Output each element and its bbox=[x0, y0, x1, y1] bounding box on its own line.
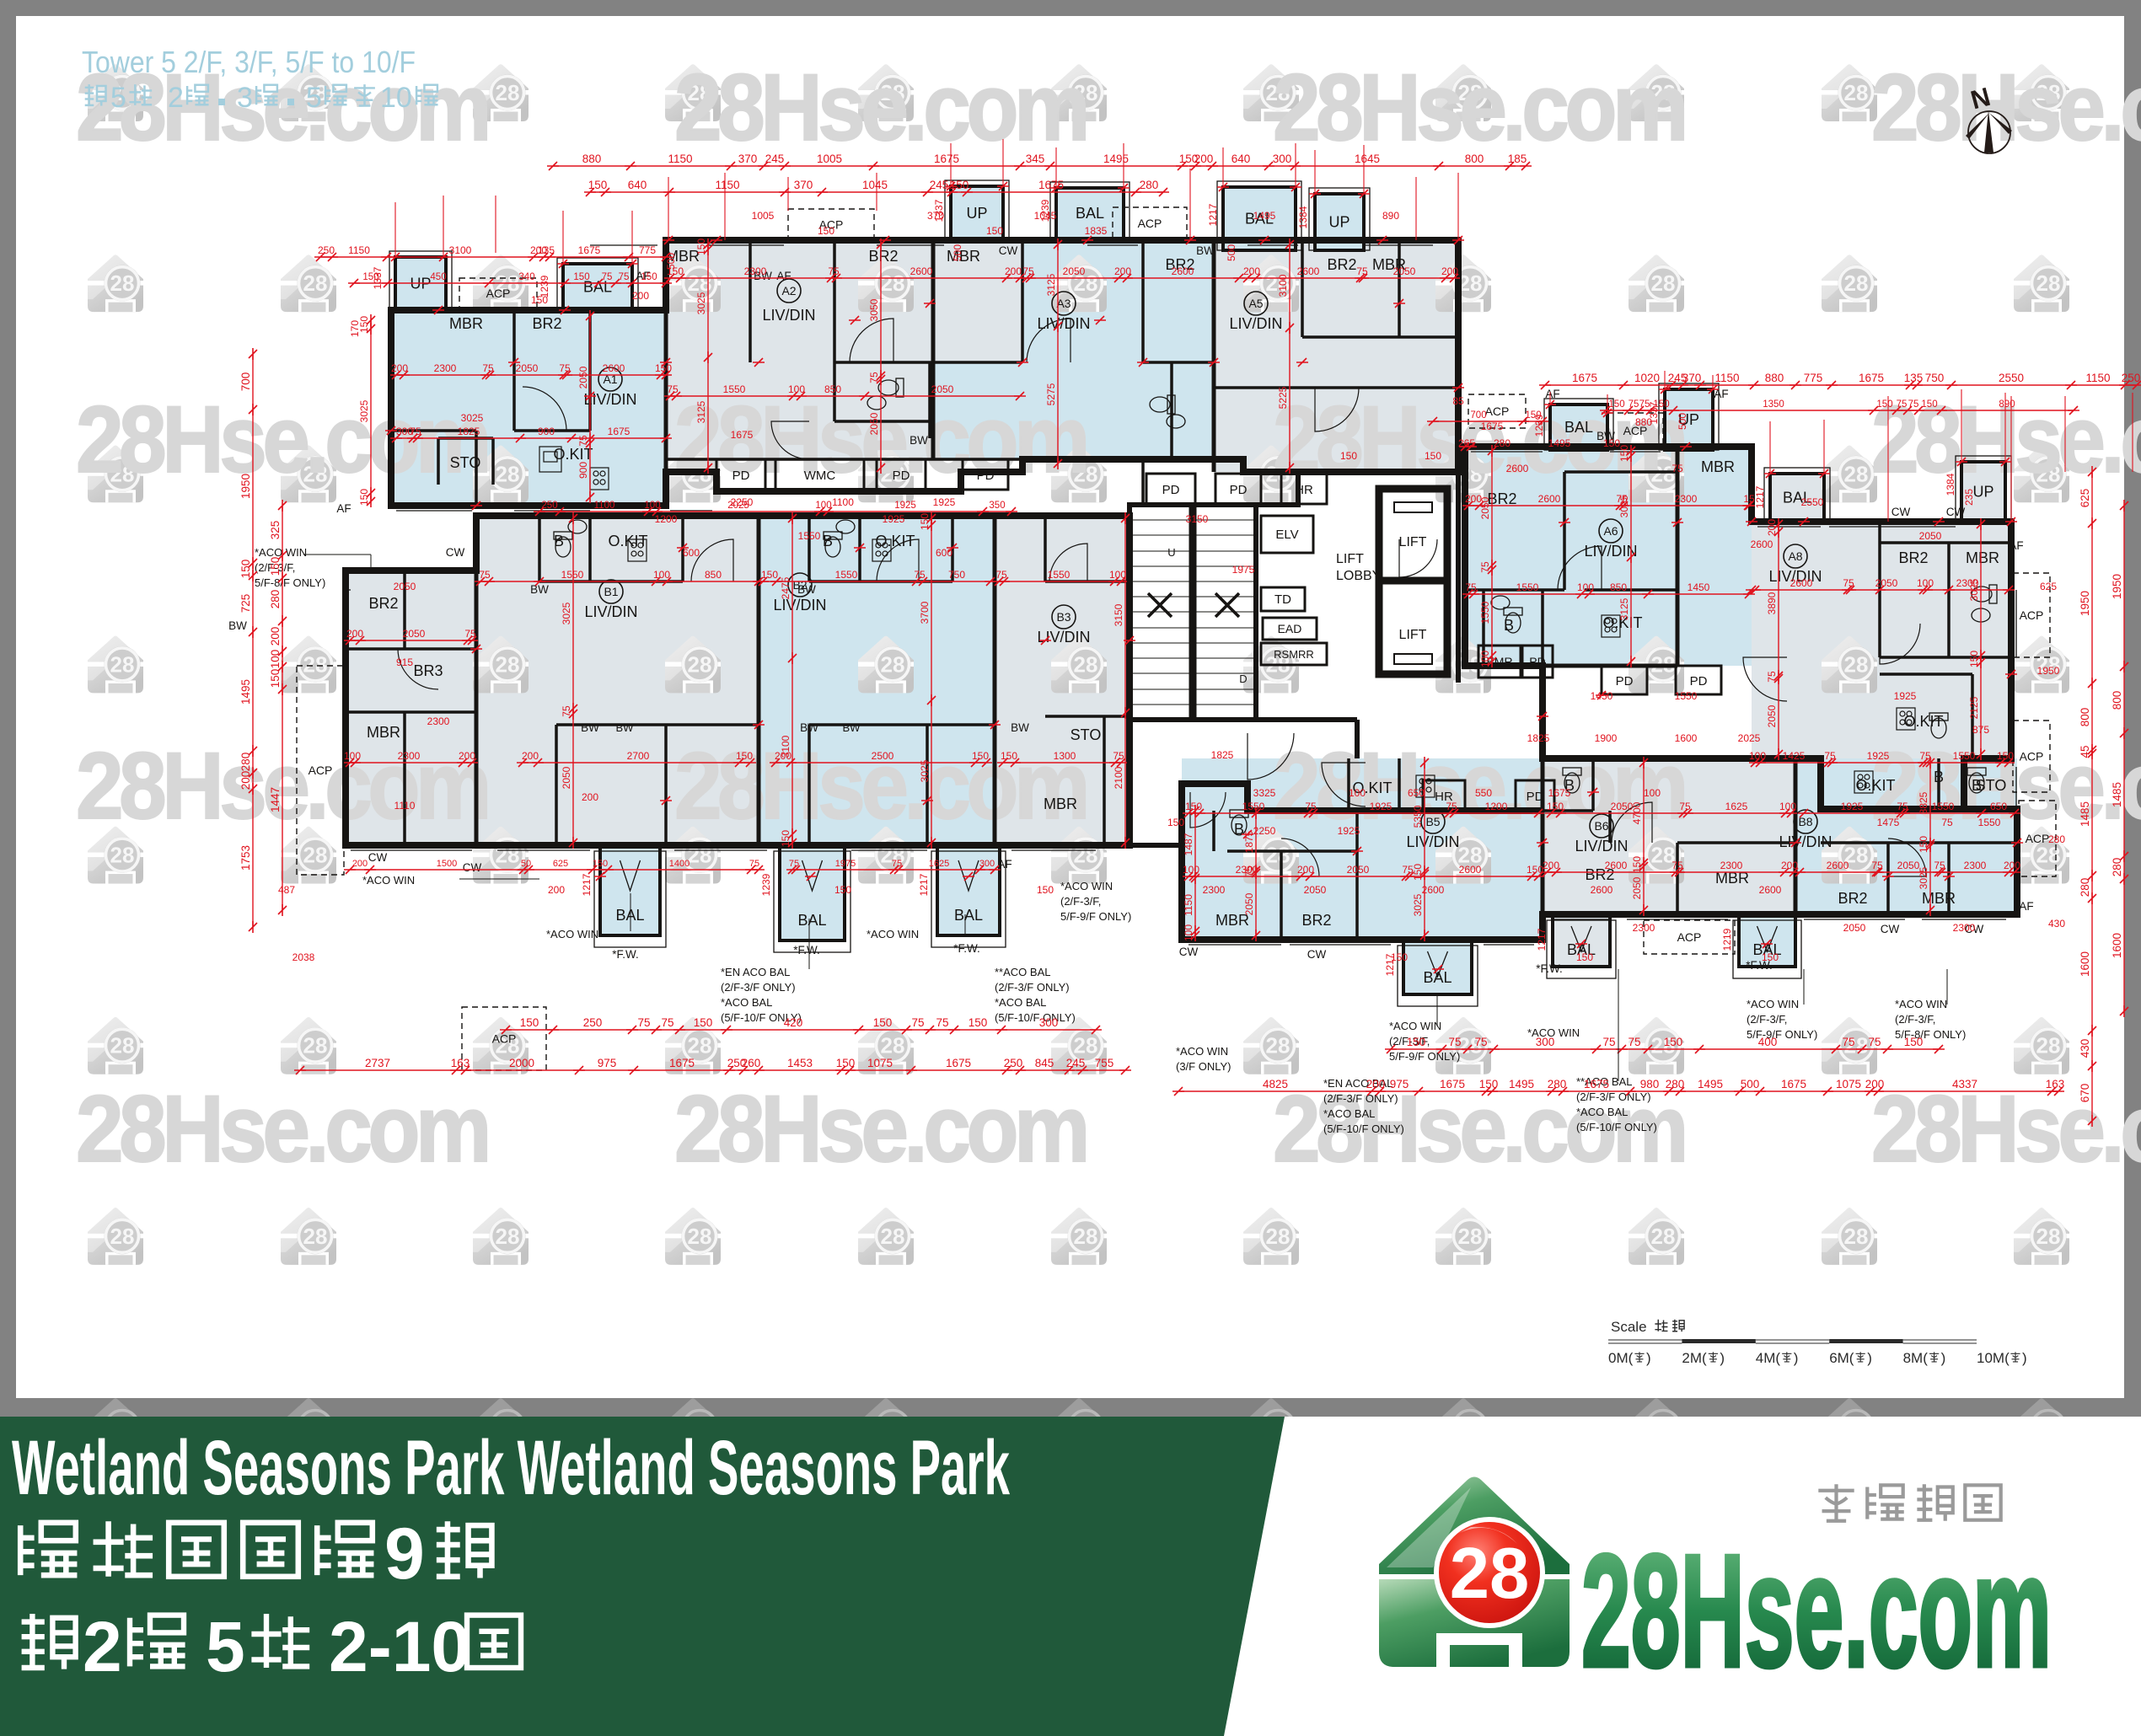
svg-text:2600: 2600 bbox=[1759, 884, 1782, 896]
svg-text:BW: BW bbox=[616, 721, 635, 734]
svg-text:*ACO BAL: *ACO BAL bbox=[1576, 1106, 1628, 1118]
svg-text:550: 550 bbox=[1475, 787, 1492, 799]
svg-text:2050: 2050 bbox=[1611, 801, 1634, 812]
svg-text:4337: 4337 bbox=[1952, 1078, 1977, 1090]
svg-text:CW: CW bbox=[1946, 506, 1966, 518]
svg-text:1150: 1150 bbox=[2085, 372, 2110, 384]
svg-text:280: 280 bbox=[1666, 1078, 1685, 1090]
svg-text:300: 300 bbox=[979, 859, 995, 869]
svg-text:D: D bbox=[1239, 672, 1247, 685]
svg-text:2: 2 bbox=[83, 1607, 122, 1686]
svg-text:*ACO WIN: *ACO WIN bbox=[867, 928, 919, 940]
svg-text:1450: 1450 bbox=[1688, 581, 1710, 593]
svg-text:755: 755 bbox=[1095, 1057, 1114, 1069]
svg-text:2050: 2050 bbox=[403, 628, 426, 640]
svg-text:2050: 2050 bbox=[561, 766, 572, 789]
svg-text:150: 150 bbox=[239, 560, 252, 579]
svg-text:BW: BW bbox=[1011, 721, 1029, 734]
svg-text:75: 75 bbox=[1868, 1036, 1881, 1048]
svg-text:28Hse.com: 28Hse.com bbox=[1871, 1076, 2141, 1181]
svg-text:150: 150 bbox=[972, 750, 989, 762]
svg-text:1675: 1675 bbox=[1440, 1078, 1465, 1090]
svg-text:CW: CW bbox=[1881, 923, 1900, 935]
svg-text:BR2: BR2 bbox=[368, 595, 398, 612]
svg-text:(2/F-3/F ONLY): (2/F-3/F ONLY) bbox=[1576, 1090, 1651, 1103]
svg-text:200: 200 bbox=[352, 859, 368, 869]
svg-text:280: 280 bbox=[269, 590, 282, 609]
svg-text:MBR: MBR bbox=[1044, 796, 1077, 812]
svg-text:1495: 1495 bbox=[1103, 153, 1129, 165]
svg-text:(2/F-3/F ONLY): (2/F-3/F ONLY) bbox=[721, 981, 796, 994]
svg-text:3025: 3025 bbox=[461, 412, 484, 424]
svg-text:*ACO BAL: *ACO BAL bbox=[1323, 1107, 1375, 1120]
svg-text:1075: 1075 bbox=[867, 1057, 893, 1069]
svg-text:1337: 1337 bbox=[1648, 401, 1660, 424]
svg-text:A6: A6 bbox=[1603, 524, 1618, 538]
svg-text:BR2: BR2 bbox=[1898, 549, 1928, 566]
svg-text:150: 150 bbox=[780, 830, 791, 847]
svg-text:BR2: BR2 bbox=[532, 315, 561, 332]
svg-text:1453: 1453 bbox=[787, 1057, 813, 1069]
svg-text:3025: 3025 bbox=[1618, 495, 1630, 517]
svg-text:2550: 2550 bbox=[1801, 496, 1824, 508]
svg-text:15: 15 bbox=[1743, 493, 1755, 505]
svg-text:5: 5 bbox=[110, 82, 126, 114]
svg-text:ELV: ELV bbox=[1275, 528, 1298, 542]
svg-text:1925: 1925 bbox=[1867, 750, 1890, 762]
svg-text:1239: 1239 bbox=[1039, 199, 1051, 222]
svg-text:75: 75 bbox=[1602, 1036, 1615, 1048]
svg-text:845: 845 bbox=[1035, 1057, 1054, 1069]
svg-text:LIFT: LIFT bbox=[1399, 628, 1427, 642]
svg-text:28Hse.com: 28Hse.com bbox=[674, 1076, 1086, 1181]
svg-text:2737: 2737 bbox=[365, 1057, 390, 1069]
svg-text:245: 245 bbox=[1066, 1057, 1086, 1069]
svg-text:500: 500 bbox=[1226, 244, 1237, 261]
svg-text:2475: 2475 bbox=[780, 576, 791, 599]
svg-text:200: 200 bbox=[1766, 519, 1778, 536]
svg-text:CW: CW bbox=[999, 244, 1018, 257]
svg-text:3100: 3100 bbox=[780, 735, 791, 758]
svg-text:150: 150 bbox=[1576, 951, 1593, 963]
svg-text:): ) bbox=[1941, 1350, 1946, 1366]
svg-text:B5: B5 bbox=[1425, 815, 1440, 828]
svg-text:5/F-8/F ONLY): 5/F-8/F ONLY) bbox=[255, 576, 325, 589]
svg-text:5/F-9/F ONLY): 5/F-9/F ONLY) bbox=[1060, 910, 1131, 923]
svg-text:1217: 1217 bbox=[1754, 485, 1766, 508]
svg-text:75: 75 bbox=[1629, 399, 1639, 410]
svg-text:): ) bbox=[1646, 1350, 1651, 1366]
svg-text:1550: 1550 bbox=[835, 569, 858, 581]
svg-text:345: 345 bbox=[1026, 153, 1045, 165]
svg-text:1675: 1675 bbox=[731, 429, 754, 441]
svg-text:B1: B1 bbox=[604, 585, 618, 598]
svg-text:10: 10 bbox=[380, 82, 412, 114]
svg-text:*ACO WIN: *ACO WIN bbox=[1060, 880, 1113, 892]
svg-text:(3/F ONLY): (3/F ONLY) bbox=[1176, 1060, 1231, 1073]
svg-text:850: 850 bbox=[824, 383, 841, 395]
svg-text:1150: 1150 bbox=[1714, 372, 1739, 384]
svg-text:900: 900 bbox=[577, 462, 589, 479]
svg-text:2300: 2300 bbox=[434, 362, 457, 374]
svg-text:100: 100 bbox=[1644, 787, 1661, 799]
svg-text:800: 800 bbox=[1465, 153, 1484, 165]
svg-text:150: 150 bbox=[1918, 836, 1929, 853]
svg-text:200: 200 bbox=[239, 771, 252, 790]
svg-text:75: 75 bbox=[936, 1016, 948, 1029]
svg-text:2600: 2600 bbox=[1827, 860, 1849, 871]
svg-text:500: 500 bbox=[665, 253, 677, 270]
svg-text:2050: 2050 bbox=[577, 366, 589, 388]
svg-text:2600: 2600 bbox=[1751, 538, 1773, 550]
svg-text:775: 775 bbox=[639, 244, 656, 256]
svg-text:2050: 2050 bbox=[931, 383, 954, 395]
svg-text:150: 150 bbox=[736, 750, 753, 762]
svg-text:1005: 1005 bbox=[752, 210, 775, 222]
svg-text:5225: 5225 bbox=[1277, 386, 1289, 409]
svg-text:250: 250 bbox=[541, 501, 557, 511]
svg-text:625: 625 bbox=[2079, 489, 2091, 508]
svg-text:1675: 1675 bbox=[1584, 1078, 1609, 1090]
svg-text:2600: 2600 bbox=[1459, 864, 1482, 876]
svg-text:75: 75 bbox=[561, 705, 572, 717]
svg-text:2600: 2600 bbox=[1297, 265, 1320, 277]
svg-text:100: 100 bbox=[1349, 787, 1366, 799]
svg-text:150: 150 bbox=[1631, 856, 1643, 873]
svg-text:1550: 1550 bbox=[1932, 801, 1955, 812]
svg-text:75: 75 bbox=[995, 569, 1007, 581]
svg-text:1753: 1753 bbox=[239, 845, 252, 871]
svg-text:1300: 1300 bbox=[1054, 750, 1076, 762]
svg-text:1337: 1337 bbox=[372, 266, 384, 289]
svg-text:1625: 1625 bbox=[929, 859, 949, 869]
svg-text:1825: 1825 bbox=[1527, 732, 1550, 744]
svg-text:150: 150 bbox=[1407, 1036, 1426, 1048]
svg-text:*ACO WIN: *ACO WIN bbox=[1389, 1020, 1441, 1032]
svg-text:880: 880 bbox=[1765, 372, 1784, 384]
svg-text:0M(: 0M( bbox=[1608, 1350, 1634, 1366]
svg-text:280: 280 bbox=[2048, 833, 2065, 845]
svg-text:WMC: WMC bbox=[804, 469, 836, 483]
svg-text:*F.W.: *F.W. bbox=[1536, 962, 1563, 975]
svg-text:200: 200 bbox=[2004, 860, 2020, 871]
svg-text:(2/F-3/F,: (2/F-3/F, bbox=[1895, 1013, 1935, 1026]
svg-text:75: 75 bbox=[914, 569, 926, 581]
svg-text:AF: AF bbox=[776, 270, 791, 282]
svg-text:3025: 3025 bbox=[1968, 578, 1980, 601]
svg-text:75: 75 bbox=[619, 272, 630, 282]
svg-text:50: 50 bbox=[521, 859, 531, 869]
svg-text:75: 75 bbox=[1465, 581, 1477, 593]
svg-text:100: 100 bbox=[269, 650, 282, 669]
svg-text:150: 150 bbox=[269, 557, 282, 576]
svg-text:PD: PD bbox=[1616, 674, 1634, 689]
svg-text:4825: 4825 bbox=[1263, 1078, 1288, 1090]
svg-text:2: 2 bbox=[168, 82, 184, 114]
svg-text:150: 150 bbox=[873, 1016, 893, 1029]
svg-text:185: 185 bbox=[1508, 153, 1527, 165]
svg-text:AF: AF bbox=[336, 502, 351, 515]
svg-text:800: 800 bbox=[2079, 708, 2091, 727]
svg-text:1150: 1150 bbox=[348, 244, 370, 256]
svg-text:75: 75 bbox=[1446, 801, 1457, 812]
svg-text:1500: 1500 bbox=[437, 859, 457, 869]
svg-text:RSMRR: RSMRR bbox=[1274, 648, 1314, 661]
svg-text:1100: 1100 bbox=[832, 496, 854, 508]
svg-text:O.KIT: O.KIT bbox=[1903, 713, 1943, 730]
svg-text:1150: 1150 bbox=[715, 179, 739, 191]
svg-text:5/F-9/F ONLY): 5/F-9/F ONLY) bbox=[1747, 1028, 1817, 1041]
svg-text:1217: 1217 bbox=[1536, 928, 1548, 951]
svg-text:LIV/DIN: LIV/DIN bbox=[1229, 315, 1282, 332]
svg-text:1450: 1450 bbox=[1591, 690, 1613, 702]
svg-text:2600: 2600 bbox=[1506, 463, 1529, 474]
svg-text:PD: PD bbox=[1690, 674, 1708, 689]
svg-text:B3: B3 bbox=[1056, 610, 1070, 624]
svg-text:2-10: 2-10 bbox=[329, 1607, 470, 1686]
svg-text:980: 980 bbox=[1640, 1078, 1660, 1090]
svg-text:100: 100 bbox=[344, 750, 361, 762]
svg-text:1005: 1005 bbox=[817, 153, 842, 165]
svg-text:245: 245 bbox=[765, 153, 785, 165]
svg-text:*ACO WIN: *ACO WIN bbox=[362, 874, 415, 887]
svg-text:2250: 2250 bbox=[731, 496, 754, 508]
svg-text:U: U bbox=[1167, 546, 1175, 559]
svg-text:PD: PD bbox=[893, 469, 910, 483]
svg-text:880: 880 bbox=[582, 153, 602, 165]
svg-text:75: 75 bbox=[1671, 463, 1683, 474]
svg-text:1384: 1384 bbox=[1297, 206, 1309, 228]
svg-text:1675: 1675 bbox=[1481, 421, 1504, 432]
svg-text:5/F-9/F ONLY): 5/F-9/F ONLY) bbox=[1389, 1050, 1460, 1063]
svg-text:1825: 1825 bbox=[458, 426, 480, 437]
svg-text:85: 85 bbox=[1452, 395, 1464, 407]
svg-text:9: 9 bbox=[384, 1514, 425, 1594]
svg-text:100: 100 bbox=[653, 569, 670, 581]
svg-text:1239: 1239 bbox=[760, 873, 772, 896]
svg-text:75: 75 bbox=[1479, 561, 1491, 573]
svg-text:2250: 2250 bbox=[1253, 825, 1276, 837]
svg-text:150: 150 bbox=[1904, 1036, 1924, 1048]
svg-text:1975: 1975 bbox=[835, 859, 856, 869]
svg-text:CW: CW bbox=[368, 851, 388, 864]
svg-text:430: 430 bbox=[2079, 1039, 2091, 1058]
svg-text:(5/F-10/F ONLY): (5/F-10/F ONLY) bbox=[1576, 1121, 1657, 1133]
svg-text:2300: 2300 bbox=[427, 715, 450, 727]
svg-text:1675: 1675 bbox=[1572, 372, 1597, 384]
svg-text:700: 700 bbox=[239, 372, 252, 392]
svg-text:163: 163 bbox=[451, 1057, 470, 1069]
svg-text:265: 265 bbox=[1458, 437, 1475, 449]
svg-text:2600: 2600 bbox=[1538, 493, 1561, 505]
svg-text:3: 3 bbox=[237, 82, 253, 114]
svg-text:280: 280 bbox=[239, 753, 252, 772]
svg-text:STO: STO bbox=[1070, 726, 1102, 743]
svg-text:2300: 2300 bbox=[398, 750, 421, 762]
svg-text:1925: 1925 bbox=[1370, 801, 1392, 812]
svg-text:725: 725 bbox=[239, 594, 252, 613]
svg-text:1350: 1350 bbox=[1763, 399, 1784, 410]
svg-text:325: 325 bbox=[269, 521, 282, 540]
svg-text:3890: 3890 bbox=[1766, 592, 1778, 614]
svg-text:1925: 1925 bbox=[933, 496, 956, 508]
svg-text:150: 150 bbox=[1185, 801, 1202, 812]
svg-text:1020: 1020 bbox=[1634, 372, 1660, 384]
svg-text:2050: 2050 bbox=[1243, 892, 1255, 915]
svg-text:CW: CW bbox=[1307, 948, 1327, 961]
svg-text:700: 700 bbox=[1470, 410, 1486, 421]
svg-text:890: 890 bbox=[1382, 210, 1399, 222]
svg-text:250: 250 bbox=[583, 1016, 603, 1029]
svg-text:625: 625 bbox=[553, 859, 568, 869]
svg-text:(2/F-3/F,: (2/F-3/F, bbox=[1747, 1013, 1787, 1026]
svg-text:PD: PD bbox=[1230, 483, 1248, 497]
svg-text:*F.W.: *F.W. bbox=[793, 944, 820, 956]
svg-text:*ACO WIN: *ACO WIN bbox=[1176, 1045, 1228, 1058]
svg-text:4M(: 4M( bbox=[1756, 1350, 1781, 1366]
svg-text:2600: 2600 bbox=[1605, 860, 1628, 871]
svg-text:850: 850 bbox=[1610, 581, 1627, 593]
svg-text:AF: AF bbox=[997, 858, 1011, 871]
svg-text:ACP: ACP bbox=[2020, 608, 2044, 622]
svg-text:890: 890 bbox=[1999, 399, 2015, 410]
svg-text:B: B bbox=[1934, 769, 1944, 785]
svg-text:150: 150 bbox=[1664, 1036, 1683, 1048]
svg-text:2050: 2050 bbox=[1347, 864, 1370, 876]
svg-text:430: 430 bbox=[2048, 918, 2065, 930]
svg-text:5: 5 bbox=[206, 1607, 245, 1686]
svg-text:670: 670 bbox=[2079, 1084, 2091, 1103]
svg-text:AF: AF bbox=[2019, 900, 2033, 913]
svg-text:1550: 1550 bbox=[1675, 690, 1698, 702]
svg-text:28Hse.com: 28Hse.com bbox=[76, 1076, 487, 1181]
svg-text:(2/F-3/F ONLY): (2/F-3/F ONLY) bbox=[1323, 1092, 1398, 1105]
svg-text:(5/F-10/F ONLY): (5/F-10/F ONLY) bbox=[1323, 1123, 1404, 1135]
svg-text:1217: 1217 bbox=[918, 873, 930, 896]
svg-text:2050: 2050 bbox=[1766, 705, 1778, 727]
svg-text:370: 370 bbox=[738, 153, 758, 165]
svg-text:2600: 2600 bbox=[603, 362, 625, 374]
svg-text:600: 600 bbox=[683, 547, 700, 559]
svg-text:ACP: ACP bbox=[2026, 832, 2050, 845]
svg-text:2125: 2125 bbox=[1968, 696, 1980, 719]
svg-text:3150: 3150 bbox=[1186, 513, 1209, 525]
svg-text:1600: 1600 bbox=[2111, 933, 2123, 958]
svg-text:28Hse.com: 28Hse.com bbox=[1581, 1522, 2052, 1701]
svg-text:350: 350 bbox=[989, 501, 1005, 511]
svg-text:3125: 3125 bbox=[695, 400, 707, 423]
svg-text:1550: 1550 bbox=[798, 530, 821, 542]
svg-text:170: 170 bbox=[349, 320, 361, 337]
svg-text:1150: 1150 bbox=[668, 153, 692, 165]
svg-text:1487: 1487 bbox=[1183, 833, 1194, 855]
svg-text:PD: PD bbox=[1527, 790, 1544, 804]
svg-text:1150: 1150 bbox=[1183, 894, 1194, 916]
svg-text:150: 150 bbox=[1547, 801, 1564, 812]
svg-text:1550: 1550 bbox=[1242, 801, 1265, 812]
svg-text:150: 150 bbox=[1001, 750, 1017, 762]
svg-text:2300: 2300 bbox=[1964, 860, 1987, 871]
svg-text:1550: 1550 bbox=[1479, 601, 1491, 624]
svg-text:1337: 1337 bbox=[933, 199, 945, 222]
svg-text:2500: 2500 bbox=[872, 750, 894, 762]
svg-text:340: 340 bbox=[518, 272, 534, 282]
svg-text:5275: 5275 bbox=[1045, 383, 1057, 405]
svg-text:150: 150 bbox=[1603, 437, 1620, 449]
svg-text:1900: 1900 bbox=[1595, 732, 1618, 744]
svg-text:1550: 1550 bbox=[1953, 750, 1976, 762]
svg-text:1384: 1384 bbox=[1945, 473, 1956, 496]
svg-text:2050: 2050 bbox=[1897, 860, 1920, 871]
svg-text:150: 150 bbox=[1340, 450, 1357, 462]
svg-text:): ) bbox=[1867, 1350, 1872, 1366]
svg-text:100: 100 bbox=[1917, 577, 1934, 589]
svg-text:200: 200 bbox=[346, 628, 363, 640]
svg-text:75: 75 bbox=[1474, 1036, 1487, 1048]
svg-text:UP: UP bbox=[966, 205, 987, 222]
svg-text:1045: 1045 bbox=[862, 179, 888, 191]
svg-text:2600: 2600 bbox=[1591, 884, 1613, 896]
svg-text:1217: 1217 bbox=[581, 873, 593, 896]
svg-text:2050: 2050 bbox=[1919, 530, 1942, 542]
svg-text:LIV/DIN: LIV/DIN bbox=[762, 307, 815, 324]
svg-text:75: 75 bbox=[911, 1016, 924, 1029]
svg-text:150: 150 bbox=[1762, 951, 1779, 963]
svg-text:BR2: BR2 bbox=[1327, 256, 1356, 273]
svg-text:3100: 3100 bbox=[1277, 274, 1289, 297]
svg-text:LIV/DIN: LIV/DIN bbox=[1575, 838, 1628, 855]
svg-text:487: 487 bbox=[278, 884, 295, 896]
svg-text:MBR: MBR bbox=[367, 724, 400, 741]
svg-text:A8: A8 bbox=[1788, 549, 1802, 563]
svg-text:200: 200 bbox=[1005, 265, 1022, 277]
svg-text:200: 200 bbox=[522, 750, 539, 762]
svg-text:75: 75 bbox=[637, 1016, 650, 1029]
svg-text:*EN ACO BAL: *EN ACO BAL bbox=[721, 966, 790, 978]
svg-text:BW: BW bbox=[910, 434, 928, 447]
svg-text:280: 280 bbox=[1494, 437, 1511, 449]
svg-text:245: 245 bbox=[930, 179, 949, 191]
svg-text:2050: 2050 bbox=[1063, 265, 1086, 277]
svg-text:1925: 1925 bbox=[883, 513, 905, 525]
svg-text:75: 75 bbox=[602, 272, 613, 282]
svg-text:1625: 1625 bbox=[1725, 801, 1748, 812]
svg-text:PD: PD bbox=[1162, 483, 1180, 497]
svg-text:3025: 3025 bbox=[358, 399, 370, 422]
svg-text:ACP: ACP bbox=[1677, 930, 1702, 944]
svg-text:1495: 1495 bbox=[239, 679, 252, 705]
svg-text:BW: BW bbox=[228, 619, 247, 632]
svg-text:AF: AF bbox=[2009, 539, 2023, 552]
svg-text:650: 650 bbox=[1990, 801, 2007, 812]
svg-text:2100: 2100 bbox=[1113, 766, 1124, 789]
svg-text:**ACO BAL: **ACO BAL bbox=[995, 966, 1050, 978]
svg-text:875: 875 bbox=[1972, 724, 1989, 736]
svg-text:TD: TD bbox=[1274, 592, 1291, 607]
svg-text:10M(: 10M( bbox=[1977, 1350, 2010, 1366]
svg-text:3025: 3025 bbox=[1918, 866, 1929, 889]
svg-text:LIFT: LIFT bbox=[1399, 535, 1427, 549]
svg-text:1550: 1550 bbox=[561, 569, 584, 581]
svg-text:2025: 2025 bbox=[1738, 732, 1761, 744]
svg-text:400: 400 bbox=[1758, 1036, 1778, 1048]
svg-text:150: 150 bbox=[1167, 817, 1184, 828]
svg-text:LIV/DIN: LIV/DIN bbox=[1584, 543, 1637, 560]
svg-text:1200: 1200 bbox=[1485, 801, 1508, 812]
svg-text:A5: A5 bbox=[1248, 297, 1263, 310]
svg-text:A2: A2 bbox=[781, 284, 796, 297]
svg-text:2600: 2600 bbox=[1790, 577, 1813, 589]
